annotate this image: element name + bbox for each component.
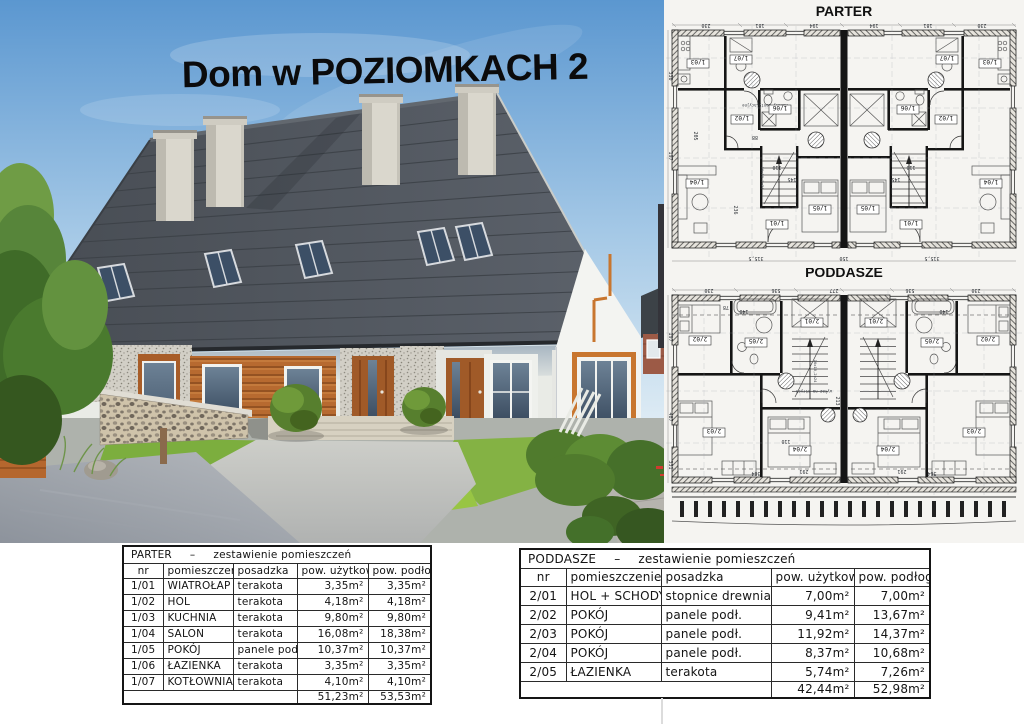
cell-use: 3,35m² [297, 658, 368, 674]
table-row: 1/05 POKÓJ panele podł. 10,37m² 10,37m² [123, 642, 431, 658]
dim-label: 140 [939, 308, 948, 314]
room-label: 1/07 [939, 54, 954, 61]
table-title: PARTER–zestawienie pomieszczeń [123, 546, 431, 563]
room-label: 2/01 [868, 317, 883, 324]
cloud [80, 94, 280, 126]
cell-floor: terakota [661, 662, 771, 681]
cell-floor: terakota [233, 594, 297, 610]
dim-label: 277 [829, 287, 838, 293]
table-row: 2/03 POKÓJ panele podł. 11,92m² 14,37m² [520, 624, 930, 643]
cell-nr: 2/03 [520, 624, 566, 643]
cell-use: 10,37m² [297, 642, 368, 658]
room-label: 2/02 [980, 335, 995, 342]
dim-label: 145 [787, 176, 796, 182]
plan-label-parter: PARTER [664, 3, 1024, 19]
room-label: 1/06 [900, 104, 915, 111]
dim-label: 110 [772, 164, 781, 170]
room-label: 1/04 [983, 178, 998, 185]
table-title-floor: PODDASZE [528, 552, 596, 566]
wooden-post [160, 428, 167, 464]
cell-floor: panele podł. [661, 624, 771, 643]
dim-label: 315,5 [748, 255, 763, 261]
cell-room: SALON [163, 626, 233, 642]
cell-room: HOL + SCHODY [566, 586, 661, 605]
col-header-nr: nr [520, 568, 566, 586]
dim-label: 331 [667, 460, 673, 469]
cell-room: KOTŁOWNIA [163, 674, 233, 690]
cell-use: 9,80m² [297, 610, 368, 626]
total-use: 51,23m² [297, 690, 368, 704]
cell-pod: 18,38m² [368, 626, 431, 642]
cell-room: ŁAZIENKA [163, 658, 233, 674]
dim-label: 181 [923, 22, 932, 28]
dim-label: 230 [701, 22, 710, 28]
cell-nr: 1/04 [123, 626, 163, 642]
dim-label: 145 [891, 176, 900, 182]
room-label: 2/05 [748, 337, 763, 344]
table-header-row: nr pomieszczenie posadzka pow. użytkowa … [520, 568, 930, 586]
room-label: 1/02 [734, 114, 749, 121]
cell-use: 8,37m² [771, 643, 854, 662]
cell-nr: 1/07 [123, 674, 163, 690]
table-title-dash: – [614, 552, 620, 566]
cell-pod: 4,10m² [368, 674, 431, 690]
cell-nr: 2/02 [520, 605, 566, 624]
cell-use: 4,18m² [297, 594, 368, 610]
room-label: 2/05 [924, 337, 939, 344]
table-total-row: 42,44m² 52,98m² [520, 681, 930, 698]
cell-pod: 7,26m² [854, 662, 930, 681]
cell-use: 16,08m² [297, 626, 368, 642]
house-photo: Dom w POZIOMKACH 2 [0, 0, 664, 543]
room-label: 2/01 [804, 317, 819, 324]
plan-note: wyłaz na strych [795, 389, 832, 394]
party-wall [841, 30, 848, 248]
dim-label: 110 [906, 164, 915, 170]
dim-label: 536 [771, 287, 780, 293]
total-pod: 53,53m² [368, 690, 431, 704]
dim-label: 110 [781, 438, 790, 444]
room-label: 1/06 [772, 104, 787, 111]
total-spacer [123, 690, 297, 704]
cell-pod: 4,18m² [368, 594, 431, 610]
cell-floor: panele podł. [661, 605, 771, 624]
table-title-caption: zestawienie pomieszczeń [213, 549, 351, 561]
cell-room: POKÓJ [566, 643, 661, 662]
cell-use: 7,00m² [771, 586, 854, 605]
cell-floor: terakota [233, 658, 297, 674]
room-label: 1/01 [903, 219, 918, 226]
dim-label: 230 [977, 22, 986, 28]
room-label: 2/03 [966, 427, 981, 434]
cell-pod: 10,68m² [854, 643, 930, 662]
dim-label: 230 [704, 287, 713, 293]
table-row: 1/07 KOTŁOWNIA terakota 4,10m² 4,10m² [123, 674, 431, 690]
cell-floor: terakota [233, 626, 297, 642]
total-pod: 52,98m² [854, 681, 930, 698]
plan-poddasze: 230 536 277 536 230 140 140 197 487 331 … [664, 281, 1024, 539]
dim-label: 315,5 [924, 255, 939, 261]
dim-label: 194 [869, 22, 878, 28]
dim-label: 150 [839, 255, 848, 261]
scanned-offer-page: Dom w POZIOMKACH 2 PARTER PODDASZE [0, 0, 1024, 724]
cell-pod: 3,35m² [368, 578, 431, 594]
col-header-floor: posadzka [233, 563, 297, 578]
table-header-row: nr pomieszczenie posadzka pow. użytkowa … [123, 563, 431, 578]
room-label: 1/03 [690, 58, 705, 65]
cell-floor: stopnice drewniane [661, 586, 771, 605]
room-label: 2/04 [792, 445, 807, 452]
stairs-label: 16x18,2x24 [813, 360, 818, 384]
table-row: 2/01 HOL + SCHODY stopnice drewniane 7,0… [520, 586, 930, 605]
parter-room-table: PARTER–zestawienie pomieszczeń nr pomies… [122, 545, 432, 705]
cell-pod: 3,35m² [368, 658, 431, 674]
cell-floor: terakota [233, 674, 297, 690]
col-header-use: pow. użytkowa [771, 568, 854, 586]
table-row: 1/02 HOL terakota 4,18m² 4,18m² [123, 594, 431, 610]
dim-label: 536 [905, 287, 914, 293]
cell-nr: 2/04 [520, 643, 566, 662]
table-row: 2/04 POKÓJ panele podł. 8,37m² 10,68m² [520, 643, 930, 662]
cell-use: 3,35m² [297, 578, 368, 594]
cell-floor: terakota [233, 610, 297, 626]
table-row: 2/05 ŁAZIENKA terakota 5,74m² 7,26m² [520, 662, 930, 681]
room-label: 1/04 [689, 178, 704, 185]
dim-label: 88 [752, 134, 758, 140]
dim-label: 291 [897, 468, 906, 474]
table-title: PODDASZE–zestawienie pomieszczeń [520, 549, 930, 568]
cell-use: 9,41m² [771, 605, 854, 624]
cell-pod: 13,67m² [854, 605, 930, 624]
col-header-pod: pow. podłogi [368, 563, 431, 578]
table-row: 1/04 SALON terakota 16,08m² 18,38m² [123, 626, 431, 642]
col-header-floor: posadzka [661, 568, 771, 586]
room-label: 1/02 [938, 114, 953, 121]
cell-nr: 2/05 [520, 662, 566, 681]
dim-label: 181 [755, 22, 764, 28]
cell-nr: 1/03 [123, 610, 163, 626]
stairs-label: 16x18,2x24 [760, 167, 765, 191]
cell-floor: terakota [233, 578, 297, 594]
dim-label: 213 [834, 396, 840, 405]
room-label: 2/03 [706, 427, 721, 434]
col-header-nr: nr [123, 563, 163, 578]
page-title: Dom w POZIOMKACH 2 [170, 46, 601, 97]
room-label: 1/05 [860, 204, 875, 211]
dim-label: 330 [667, 71, 673, 80]
cell-use: 11,92m² [771, 624, 854, 643]
table-title-row: PARTER–zestawienie pomieszczeń [123, 546, 431, 563]
room-label: 1/07 [733, 54, 748, 61]
plan-parter: 230 181 194 194 181 230 330 197 315,5 15… [664, 18, 1024, 268]
col-header-room: pomieszczenie [163, 563, 233, 578]
cell-pod: 9,80m² [368, 610, 431, 626]
cell-floor: panele podł. [233, 642, 297, 658]
cell-pod: 10,37m² [368, 642, 431, 658]
table-title-dash: – [190, 549, 195, 561]
total-spacer [520, 681, 771, 698]
cell-use: 4,10m² [297, 674, 368, 690]
cell-floor: panele podł. [661, 643, 771, 662]
col-header-pod: pow. podłogi [854, 568, 930, 586]
cell-room: WIATROŁAP [163, 578, 233, 594]
dim-label: 78 [723, 304, 729, 310]
cell-nr: 2/01 [520, 586, 566, 605]
dim-label: 194 [809, 22, 818, 28]
scan-mark [656, 466, 663, 469]
room-label: 1/01 [769, 219, 784, 226]
col-header-room: pomieszczenie [566, 568, 661, 586]
col-header-use: pow. użytkowa [297, 563, 368, 578]
table-row: 1/03 KUCHNIA terakota 9,80m² 9,80m² [123, 610, 431, 626]
cell-nr: 1/06 [123, 658, 163, 674]
total-use: 42,44m² [771, 681, 854, 698]
dim-label: 140 [739, 308, 748, 314]
boulder-highlight [88, 461, 106, 471]
cell-use: 5,74m² [771, 662, 854, 681]
floor-plans: PARTER PODDASZE [664, 0, 1024, 543]
dim-label: 364 [927, 470, 936, 476]
dim-label: 364 [751, 470, 760, 476]
cell-nr: 1/02 [123, 594, 163, 610]
cell-nr: 1/05 [123, 642, 163, 658]
cell-room: POKÓJ [163, 642, 233, 658]
dim-label: 291 [799, 468, 808, 474]
cell-room: POKÓJ [566, 605, 661, 624]
dim-label: 487 [667, 412, 673, 421]
dim-label: 230 [971, 287, 980, 293]
cell-room: ŁAZIENKA [566, 662, 661, 681]
dim-label: 205 [692, 131, 698, 140]
table-row: 2/02 POKÓJ panele podł. 9,41m² 13,67m² [520, 605, 930, 624]
scan-seam [661, 698, 663, 724]
room-label: 1/03 [982, 58, 997, 65]
room-label: 2/02 [692, 335, 707, 342]
room-label: 2/04 [880, 445, 895, 452]
cell-pod: 14,37m² [854, 624, 930, 643]
table-title-floor: PARTER [131, 549, 172, 561]
cell-pod: 7,00m² [854, 586, 930, 605]
poddasze-room-table: PODDASZE–zestawienie pomieszczeń nr pomi… [519, 548, 931, 699]
cell-room: KUCHNIA [163, 610, 233, 626]
dim-label: 197 [667, 332, 673, 341]
cell-room: POKÓJ [566, 624, 661, 643]
cell-nr: 1/01 [123, 578, 163, 594]
table-title-row: PODDASZE–zestawienie pomieszczeń [520, 549, 930, 568]
round-bush [268, 384, 324, 442]
dim-label: 236 [732, 205, 738, 214]
table-title-caption: zestawienie pomieszczeń [638, 552, 795, 566]
table-row: 1/06 ŁAZIENKA terakota 3,35m² 3,35m² [123, 658, 431, 674]
cell-room: HOL [163, 594, 233, 610]
table-row: 1/01 WIATROŁAP terakota 3,35m² 3,35m² [123, 578, 431, 594]
round-bush [400, 387, 448, 435]
dim-label: 197 [667, 151, 673, 160]
party-wall [841, 295, 848, 483]
room-label: 1/05 [812, 204, 827, 211]
table-total-row: 51,23m² 53,53m² [123, 690, 431, 704]
